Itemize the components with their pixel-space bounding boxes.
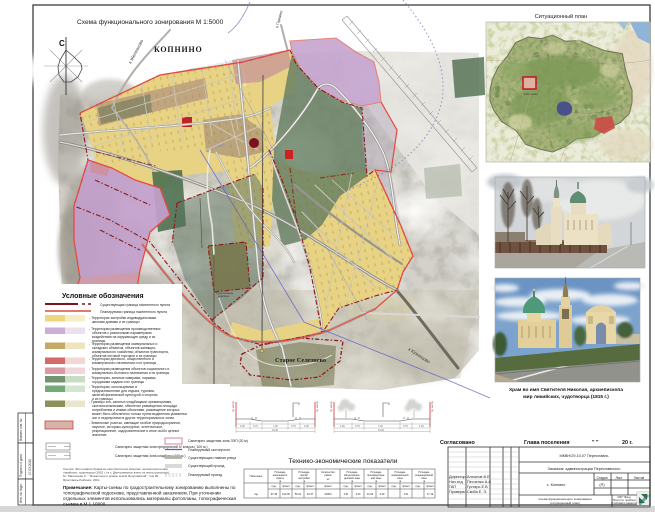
svg-text:сущ.: сущ.: [367, 485, 373, 488]
svg-text:12.06: 12.06: [367, 493, 374, 496]
svg-text:гр. застр.: гр. застр.: [232, 401, 235, 412]
svg-text:Храм во имя Святителя Николая,: Храм во имя Святителя Николая, архиеписк…: [509, 387, 623, 393]
svg-text:3.75: 3.75: [355, 425, 360, 428]
svg-text:сущ.: сущ.: [271, 485, 277, 488]
svg-text:Лист: Лист: [616, 476, 623, 480]
svg-text:кладбище: кладбище: [218, 295, 230, 298]
svg-text:значение: значение: [92, 433, 107, 437]
svg-text:Население: Население: [250, 475, 263, 478]
svg-text:жилыми домами и их границы: жилыми домами и их границы: [92, 320, 140, 324]
svg-text:97.48: 97.48: [271, 493, 278, 496]
svg-text:Густярь Е.В: Густярь Е.В: [467, 485, 488, 489]
svg-text:гр. застр.: гр. застр.: [330, 401, 333, 412]
svg-text:Подпись и дата: Подпись и дата: [19, 454, 23, 477]
svg-text:3.75: 3.75: [403, 425, 408, 428]
svg-text:с. Копнино: с. Копнино: [547, 483, 566, 487]
svg-text:2.29: 2.29: [380, 493, 385, 496]
svg-text:коммунально-бытового назначени: коммунально-бытового назначения и их гра…: [92, 371, 170, 375]
svg-text:КОПНИНО: КОПНИНО: [154, 45, 203, 54]
svg-text:(ситуационный план): (ситуационный план): [550, 501, 579, 505]
svg-text:проект: проект: [324, 485, 333, 488]
svg-text:7.00: 7.00: [378, 425, 383, 428]
svg-text:Листов: Листов: [634, 476, 645, 480]
svg-text:Схема функционального зонирова: Схема функционального зонирования М 1:50…: [77, 19, 224, 26]
svg-text:(П): (П): [599, 483, 605, 487]
svg-text:сущ.: сущ.: [343, 485, 349, 488]
svg-text:ГАП: ГАП: [449, 485, 456, 489]
svg-text:4.00: 4.00: [419, 425, 424, 428]
svg-text:с.Копнино: с.Копнино: [524, 92, 538, 96]
svg-text:сущ.: сущ.: [415, 485, 421, 488]
svg-text:зон и недопустимо в других тер: зон и недопустимо в других территориальн…: [92, 416, 174, 420]
svg-text:Санитарно защитная зона ЛЭП (2: Санитарно защитная зона ЛЭП (20 м): [188, 439, 248, 443]
svg-text:Существующая главная улица: Существующая главная улица: [188, 456, 236, 460]
svg-text:сущ.: сущ.: [295, 485, 301, 488]
svg-text:43.37: 43.37: [307, 493, 314, 496]
svg-text:1.51: 1.51: [404, 493, 409, 496]
svg-text:3.00: 3.00: [304, 425, 309, 428]
svg-text:отдельных элементов использова: отдельных элементов использовались матер…: [63, 496, 236, 501]
svg-text:3.75: 3.75: [253, 425, 258, 428]
svg-text:проект: проект: [402, 485, 411, 488]
svg-text:Нач.отд: Нач.отд: [449, 480, 463, 484]
svg-text:Инв. № подл.: Инв. № подл.: [19, 483, 23, 503]
svg-text:устойчивого развития: устойчивого развития: [611, 501, 638, 505]
svg-text:С: С: [59, 39, 65, 48]
svg-text:Планируемый скотопрогон: Планируемый скотопрогон: [188, 448, 230, 452]
svg-text:Скиба Е. Э.: Скиба Е. Э.: [467, 490, 487, 494]
svg-text:17.19: 17.19: [427, 493, 434, 496]
svg-text:4.00: 4.00: [340, 425, 345, 428]
svg-text:городскими садами и их границы: городскими садами и их границы: [92, 380, 145, 384]
svg-text:Стадия: Стадия: [597, 476, 608, 480]
svg-text:Примечание: Карты-схемы по гра: Примечание: Карты-схемы по градостроител…: [63, 485, 236, 490]
svg-text:7.00: 7.00: [273, 425, 278, 428]
svg-text:Технико-экономические показате: Технико-экономические показатели: [289, 458, 398, 465]
svg-text:15.00: 15.00: [272, 429, 279, 432]
svg-text:топографической подоснове, пре: топографической подоснове, представленно…: [63, 490, 221, 496]
svg-text:год: год: [254, 493, 258, 496]
svg-text:коммерческого назначения и их: коммерческого назначения и их границы: [92, 361, 157, 365]
svg-text:17.03.2010: 17.03.2010: [28, 459, 32, 475]
svg-text:Проверил: Проверил: [449, 490, 467, 494]
svg-text:съемка в М 1 10000: съемка в М 1 10000: [63, 502, 106, 507]
svg-text:" ": " ": [592, 440, 599, 446]
svg-text:Взамен инв. №: Взамен инв. №: [19, 418, 23, 441]
svg-text:56.01: 56.01: [295, 493, 302, 496]
svg-text:Песченко А.А: Песченко А.А: [467, 480, 491, 484]
svg-text:Директор: Директор: [449, 475, 466, 479]
svg-text:Существующий проезд: Существующий проезд: [188, 464, 224, 468]
svg-text:Планируемая граница населенног: Планируемая граница населенного пункта: [100, 310, 167, 314]
svg-text:рамок: рамок: [325, 474, 333, 477]
svg-text:Заказчик: администрация Пересл: Заказчик: администрация Переславского: [548, 467, 621, 471]
svg-text:Старое Селезнево: Старое Селезнево: [275, 357, 326, 364]
svg-text:гр. застр.: гр. застр.: [431, 401, 434, 412]
svg-text:Алтынов В.Е: Алтынов В.Е: [467, 475, 490, 479]
svg-text:МКВН/29.10.07 Переславль: МКВН/29.10.07 Переславль: [560, 454, 609, 458]
svg-text:20 г.: 20 г.: [622, 440, 633, 446]
svg-text:19.00: 19.00: [378, 429, 385, 432]
svg-text:144.06: 144.06: [282, 493, 290, 496]
svg-text:Ярославль-Рыбинск, 200х.: Ярославль-Рыбинск, 200х.: [63, 478, 100, 482]
svg-text:Существующая граница населенно: Существующая граница населенного пункта: [100, 303, 170, 307]
svg-text:проект: проект: [354, 485, 363, 488]
svg-text:проект: проект: [306, 485, 315, 488]
svg-text:м²: м²: [327, 478, 330, 481]
svg-text:Условные обозначения: Условные обозначения: [62, 292, 144, 300]
svg-text:сущ.: сущ.: [391, 485, 397, 488]
svg-text:проект: проект: [426, 485, 435, 488]
svg-text:гр. застр.: гр. застр.: [316, 401, 319, 412]
svg-text:1.51: 1.51: [344, 493, 349, 496]
svg-text:Согласовано: Согласовано: [440, 440, 476, 446]
svg-text:Планируемый проезд: Планируемый проезд: [188, 473, 222, 477]
svg-text:3.00: 3.00: [240, 425, 245, 428]
svg-text:Глава поселения: Глава поселения: [524, 440, 570, 446]
svg-text:проект: проект: [282, 485, 291, 488]
svg-text:Ситуационный план: Ситуационный план: [535, 13, 587, 20]
svg-text:21800: 21800: [325, 493, 333, 496]
svg-text:мир ликийских, чудотворца (181: мир ликийских, чудотворца (1815 г.): [523, 393, 609, 400]
svg-text:4.23: 4.23: [356, 493, 361, 496]
svg-text:проект: проект: [378, 485, 387, 488]
svg-text:3.75: 3.75: [291, 425, 296, 428]
